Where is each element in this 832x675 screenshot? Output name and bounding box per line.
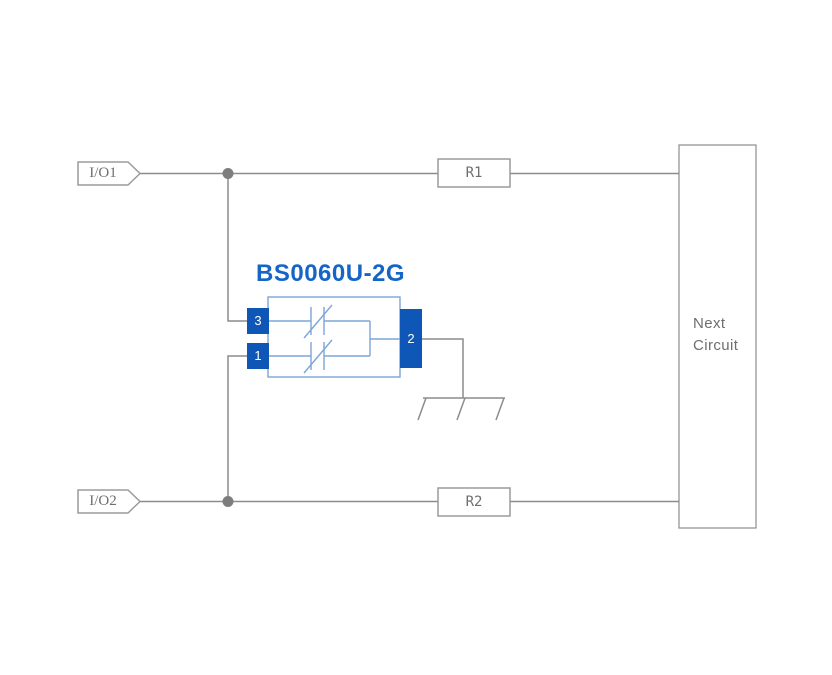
r1-label: R1 <box>438 159 510 187</box>
pin2-label: 2 <box>400 309 422 368</box>
next-circuit-line2: Circuit <box>693 335 756 357</box>
io2-label: I/O2 <box>78 490 128 513</box>
junction-dot-top <box>223 168 234 179</box>
component-body <box>268 297 400 377</box>
pin1-label: 1 <box>247 343 269 369</box>
wire-pin1-to-io2 <box>228 356 248 502</box>
next-circuit-label: Next Circuit <box>679 313 756 357</box>
circuit-diagram: I/O1 I/O2 R1 R2 Next Circuit BS0060U-2G … <box>0 0 832 675</box>
component-title: BS0060U-2G <box>256 260 405 288</box>
pin3-label: 3 <box>247 308 269 334</box>
next-circuit-line1: Next <box>693 313 756 335</box>
wire-io1-to-pin3 <box>228 174 248 322</box>
junction-dot-bottom <box>223 496 234 507</box>
wire-pin2-to-ground <box>422 339 463 398</box>
r2-label: R2 <box>438 488 510 516</box>
chassis-ground-icon <box>418 398 505 420</box>
io1-label: I/O1 <box>78 162 128 185</box>
